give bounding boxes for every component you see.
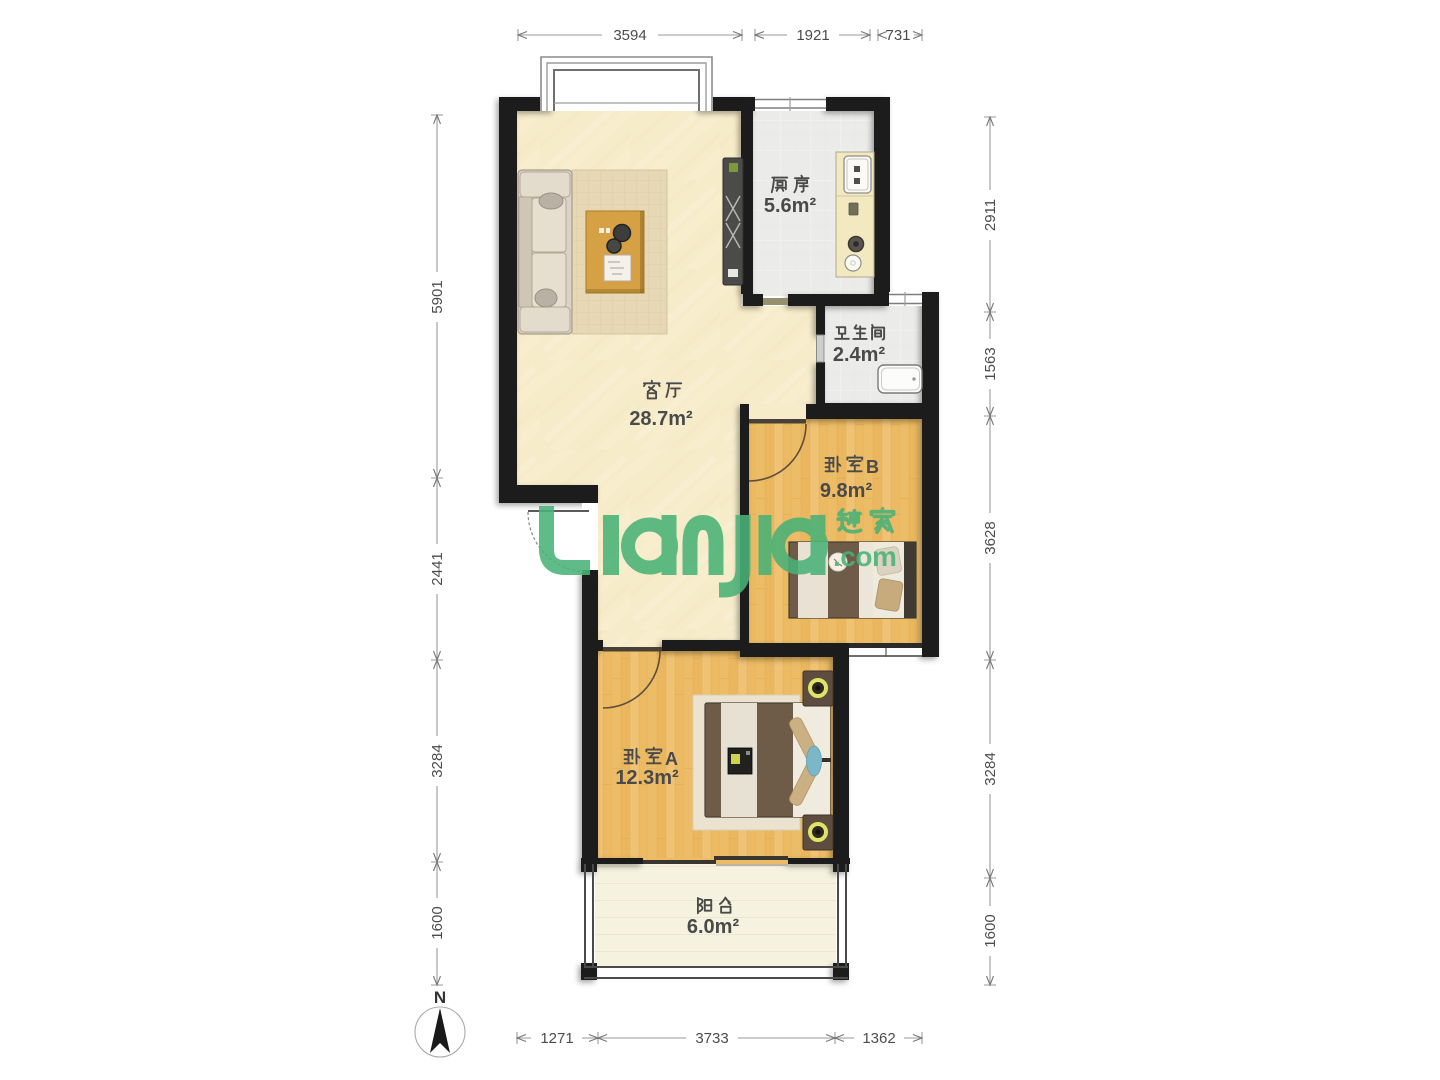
svg-text:.com: .com: [833, 541, 896, 572]
svg-text:5901: 5901: [429, 280, 446, 313]
svg-text:3284: 3284: [982, 752, 999, 785]
svg-text:2.4m²: 2.4m²: [833, 344, 886, 366]
svg-text:6.0m²: 6.0m²: [687, 916, 740, 938]
svg-text:12.3m²: 12.3m²: [615, 767, 679, 789]
svg-text:3733: 3733: [695, 1030, 728, 1047]
svg-text:A: A: [665, 749, 678, 769]
svg-text:1271: 1271: [540, 1030, 573, 1047]
svg-text:3284: 3284: [429, 744, 446, 777]
svg-text:1362: 1362: [862, 1030, 895, 1047]
svg-text:N: N: [434, 988, 446, 1007]
svg-text:B: B: [866, 457, 879, 477]
svg-text:2441: 2441: [429, 552, 446, 585]
svg-text:3628: 3628: [982, 521, 999, 554]
svg-text:1563: 1563: [982, 347, 999, 380]
svg-text:28.7m²: 28.7m²: [629, 408, 693, 430]
svg-text:1600: 1600: [429, 906, 446, 939]
svg-text:1600: 1600: [982, 914, 999, 947]
svg-text:1921: 1921: [796, 27, 829, 44]
svg-text:731: 731: [885, 27, 910, 44]
svg-text:3594: 3594: [613, 27, 646, 44]
svg-text:2911: 2911: [982, 199, 999, 231]
svg-text:9.8m²: 9.8m²: [820, 480, 873, 502]
svg-text:5.6m²: 5.6m²: [764, 195, 817, 217]
